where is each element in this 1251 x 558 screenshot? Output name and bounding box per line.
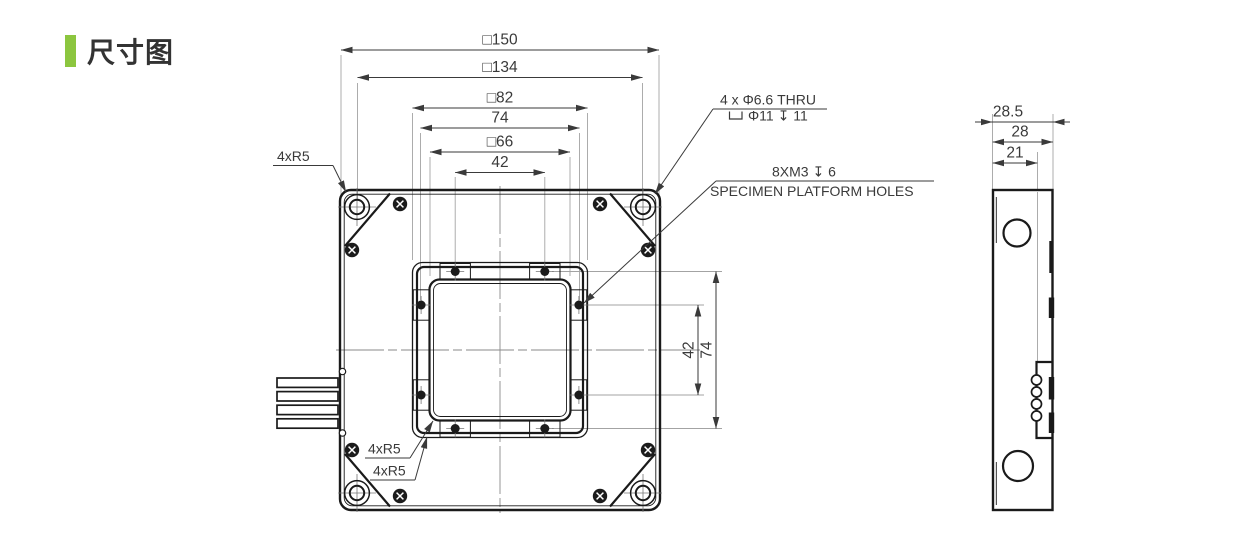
counterbore-symbol-icon (730, 112, 743, 120)
side-view: 28.5 28 21 (975, 104, 1070, 511)
dim-overall-width: 28.5 (993, 104, 1023, 121)
dim-platform-square: □82 (487, 90, 514, 107)
dimension-labels: □150 □134 □82 74 □66 42 42 74 (482, 32, 715, 359)
side-connector (1032, 241, 1055, 438)
connector-pin (1032, 375, 1042, 385)
front-view: □150 □134 □82 74 □66 42 42 74 4xR5 4 x Φ… (273, 32, 934, 514)
callout-platform-radius: 4xR5 (373, 463, 406, 479)
dim-inner-width: 21 (1006, 145, 1023, 162)
side-body-outline (993, 190, 1053, 510)
callout-platform-holes-label: SPECIMEN PLATFORM HOLES (710, 183, 914, 199)
dim-aperture-square: □66 (487, 134, 514, 151)
screw-icon (393, 489, 407, 503)
screw-icon (345, 243, 359, 257)
screw-icon (641, 443, 655, 457)
dimension-drawing: □150 □134 □82 74 □66 42 42 74 4xR5 4 x Φ… (0, 0, 1251, 558)
connector-pin (1032, 411, 1042, 421)
screw-icon (641, 243, 655, 257)
extension-lines (341, 55, 722, 429)
dim-outer-square: □150 (482, 32, 518, 49)
side-top-hole (1004, 220, 1031, 247)
screw-icon (593, 489, 607, 503)
dim-hole-span-v: 74 (699, 341, 716, 359)
callout-platform-holes-spec: 8XM3 ↧ 6 (772, 164, 836, 180)
side-dimension-labels: 28.5 28 21 (993, 104, 1029, 162)
screw-icon (345, 443, 359, 457)
callout-corner-radius: 4xR5 (277, 148, 310, 164)
callouts: 4xR5 4 x Φ6.6 THRU Φ11 ↧ 11 8XM3 ↧ 6 SPE… (273, 92, 934, 481)
callout-corner-holes-spec: 4 x Φ6.6 THRU (720, 92, 816, 108)
side-bottom-hole (1003, 451, 1033, 481)
page-title: 尺寸图 (87, 31, 174, 71)
dim-hole-span-h: 74 (491, 110, 509, 127)
callout-aperture-radius: 4xR5 (368, 441, 401, 457)
title-accent-bar (65, 35, 76, 67)
page-header: 尺寸图 (65, 31, 174, 71)
callout-counterbore-spec: Φ11 ↧ 11 (748, 108, 808, 124)
cable-leads (277, 368, 346, 436)
dim-hole-pitch-h: 42 (491, 154, 508, 171)
dim-body-width: 28 (1011, 124, 1028, 141)
connector-pin (1032, 387, 1042, 397)
screw-icon (393, 197, 407, 211)
screw-icon (593, 197, 607, 211)
dim-hole-pitch-v: 42 (681, 341, 698, 358)
connector-pin (1032, 399, 1042, 409)
dim-corner-hole-spacing: □134 (482, 59, 518, 76)
